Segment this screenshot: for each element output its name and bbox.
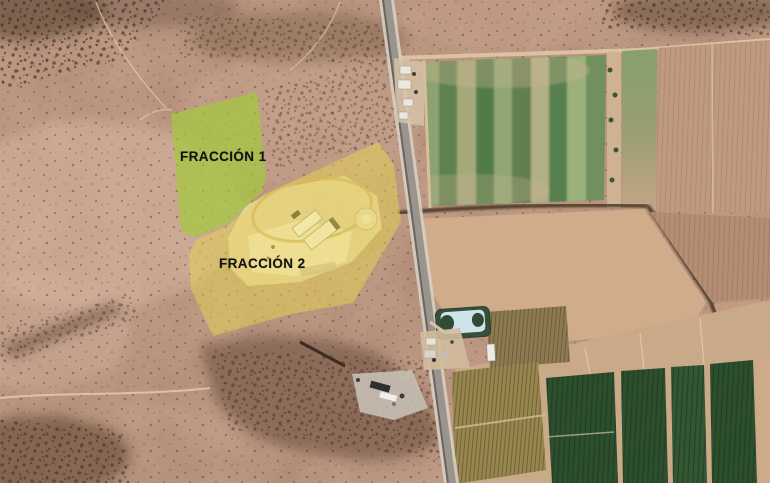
roadside-building — [399, 112, 408, 119]
parcel-label-fraccion-2: FRACCIÓN 2 — [219, 256, 306, 271]
farm-building — [440, 352, 448, 358]
farm-shed-white — [487, 344, 496, 361]
satellite-map-canvas — [0, 0, 770, 483]
roadside-building — [400, 66, 411, 74]
roadside-building — [398, 80, 411, 89]
crop-field-fading-green — [622, 49, 657, 210]
vineyard-brown-lower — [452, 362, 546, 483]
vineyard-right-edge-strip — [756, 358, 770, 483]
farm-building — [426, 338, 436, 345]
parcel-label-fraccion-1: FRACCIÓN 1 — [180, 149, 267, 164]
vineyard-green-blocks — [546, 360, 757, 483]
roadside-building — [403, 99, 413, 106]
vineyard-brown-upper — [486, 306, 570, 368]
farm-building — [424, 350, 436, 358]
crop-field-top-right-tan — [657, 40, 770, 214]
satellite-map-view: FRACCIÓN 1 FRACCIÓN 2 — [0, 0, 770, 483]
irrigation-ditch — [607, 52, 621, 208]
